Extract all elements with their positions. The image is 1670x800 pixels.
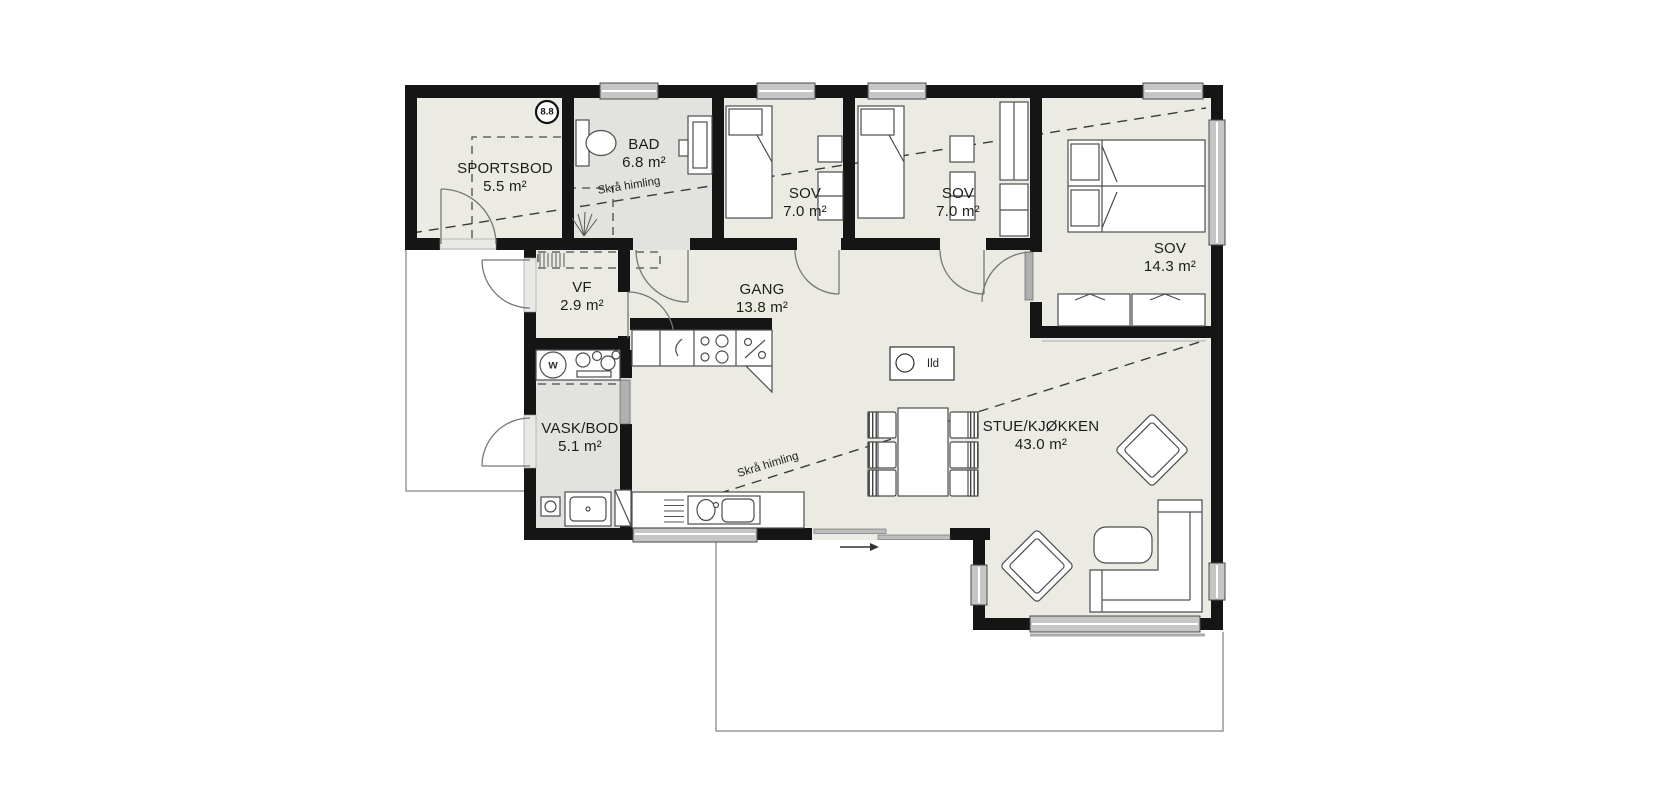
room-name: BAD: [622, 136, 666, 154]
room-name: VF: [560, 279, 604, 297]
room-label-bad: BAD 6.8 m²: [622, 136, 666, 172]
room-area: 7.0 m²: [783, 203, 827, 221]
porch-outline: [406, 250, 524, 491]
room-label-sov2: SOV 7.0 m²: [936, 185, 980, 221]
coffee-table: [1094, 527, 1152, 563]
room-name: GANG: [736, 281, 788, 299]
room-label-sportsbod: SPORTSBOD 5.5 m²: [457, 160, 553, 196]
kitchen-counter-top: [632, 330, 772, 366]
dimension-badge: 8.8: [540, 107, 553, 118]
room-area: 13.8 m²: [736, 299, 788, 317]
room-name: STUE/KJØKKEN: [983, 418, 1100, 436]
room-area: 7.0 m²: [936, 203, 980, 221]
washing-machine-label: w: [548, 358, 557, 372]
room-name: SOV: [1144, 240, 1196, 258]
nightstand: [950, 136, 974, 162]
dining-table: [898, 408, 948, 496]
floor-plan-drawing: [0, 0, 1670, 800]
room-name: SOV: [783, 185, 827, 203]
room-area: 43.0 m²: [983, 436, 1100, 454]
sliding-door-leaf: [814, 529, 886, 534]
room-area: 14.3 m²: [1144, 258, 1196, 276]
room-name: VASK/BOD: [541, 420, 618, 438]
wardrobe: [1058, 294, 1130, 326]
nightstand: [818, 136, 842, 162]
room-name: SOV: [936, 185, 980, 203]
room-area: 6.8 m²: [622, 154, 666, 172]
vf-wardrobe-comb: [540, 253, 564, 267]
room-label-stue-kjokken: STUE/KJØKKEN 43.0 m²: [983, 418, 1100, 454]
vf-entry-door-arc: [482, 260, 530, 308]
entry-arrow-head: [870, 543, 879, 551]
laundry-entry-door-arc: [482, 418, 530, 466]
room-area: 5.1 m²: [541, 438, 618, 456]
fireplace-label: Ild: [927, 358, 939, 370]
room-name: SPORTSBOD: [457, 160, 553, 178]
sliding-door-leaf: [878, 535, 950, 540]
room-label-sov3: SOV 14.3 m²: [1144, 240, 1196, 276]
room-label-vf: VF 2.9 m²: [560, 279, 604, 315]
floor-plan-page: SPORTSBOD 5.5 m² BAD 6.8 m² SOV 7.0 m² S…: [0, 0, 1670, 800]
fireplace-circle: [896, 354, 914, 372]
toilet-bowl: [586, 131, 616, 156]
room-label-sov1: SOV 7.0 m²: [783, 185, 827, 221]
cooktop-icon: [701, 337, 709, 345]
room-label-vask-bod: VASK/BOD 5.1 m²: [541, 420, 618, 456]
sov3-door-leaf: [1025, 252, 1033, 300]
room-area: 2.9 m²: [560, 297, 604, 315]
room-area: 5.5 m²: [457, 178, 553, 196]
wardrobe: [1132, 294, 1205, 326]
fridge-icon: [745, 339, 752, 346]
room-label-gang: GANG 13.8 m²: [736, 281, 788, 317]
laundry-kitchen-door-leaf: [620, 380, 630, 424]
